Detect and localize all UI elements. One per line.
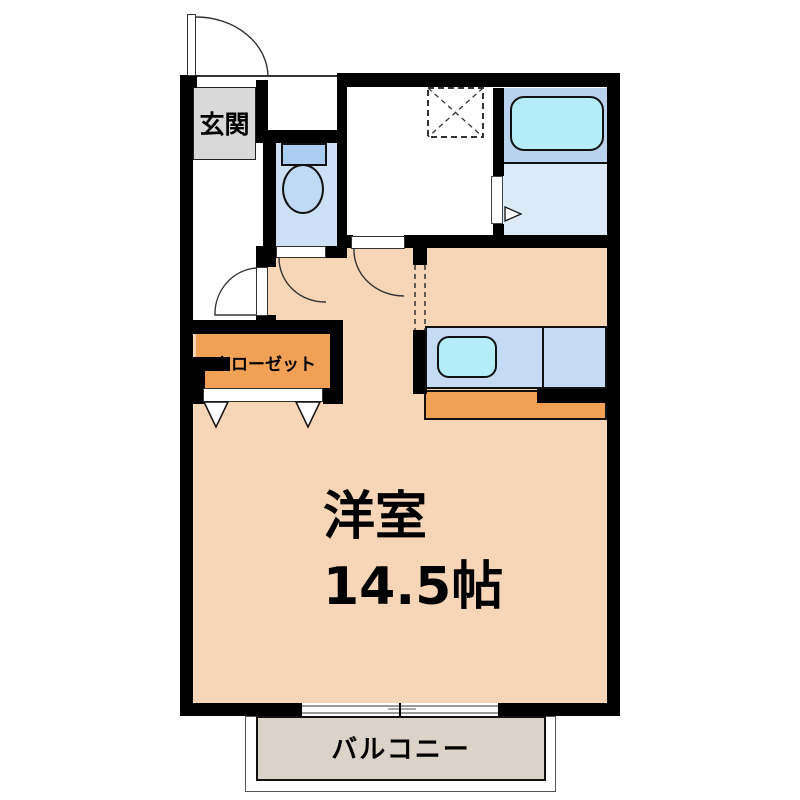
wall (180, 320, 343, 334)
washroom-floor (347, 88, 493, 236)
wall (180, 75, 197, 88)
wall (256, 246, 276, 267)
hall-floor (263, 246, 415, 330)
toilet-bowl (282, 164, 324, 214)
wall (413, 235, 427, 265)
main-room-size: 14.5帖 (323, 552, 503, 622)
closet-door-track (203, 388, 323, 402)
entrance-label: 玄関 (193, 88, 256, 158)
wall (337, 73, 620, 87)
wall (607, 75, 620, 716)
wall (493, 88, 504, 176)
hall-door-leaf (256, 267, 268, 316)
wall (263, 142, 276, 248)
entrance-door-swing (196, 17, 268, 77)
bathroom-floor (503, 162, 607, 236)
washroom-door-leaf (351, 236, 405, 249)
sliding-window (302, 703, 498, 716)
toilet-door-leaf (276, 246, 326, 258)
bath-door-leaf (491, 176, 503, 224)
kitchen-sink (437, 336, 497, 378)
wall (337, 75, 347, 248)
toilet-tank (281, 143, 327, 166)
entrance-door-leaf (187, 14, 196, 76)
wall (180, 75, 193, 716)
counter-divider (542, 328, 544, 387)
bathtub (510, 96, 604, 151)
wall (325, 246, 347, 258)
wall (323, 388, 343, 404)
wall (404, 235, 620, 248)
floor-plan: 玄関 クローゼット 洋室 14.5帖 バルコニー (0, 0, 800, 800)
main-room-label: 洋室 14.5帖 (323, 482, 503, 622)
kitchen-area-floor (413, 248, 607, 330)
main-room-name: 洋室 (323, 482, 503, 552)
balcony-label: バルコニー (256, 716, 546, 778)
closet-label: クローゼット (200, 336, 330, 388)
wall (493, 224, 504, 236)
wall (537, 388, 607, 403)
